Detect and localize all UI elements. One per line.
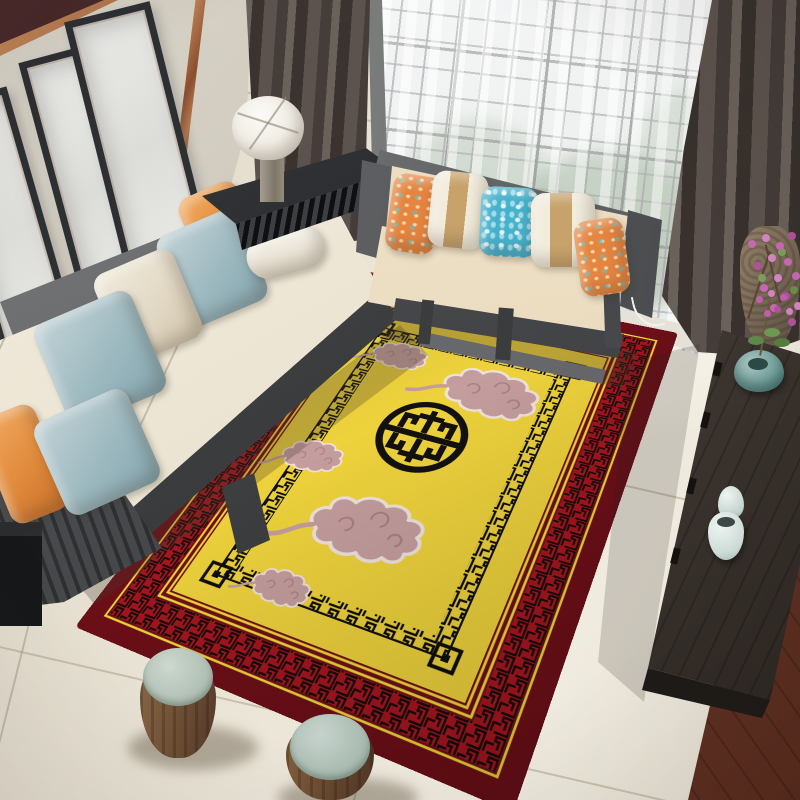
celadon-jar-opening bbox=[717, 517, 735, 527]
lampshade-seam bbox=[249, 96, 287, 150]
orchid-leaves bbox=[748, 336, 764, 345]
lotus-vase-opening bbox=[748, 358, 768, 370]
pillow-orange-floral-2 bbox=[572, 216, 632, 298]
lotus-vase bbox=[734, 350, 784, 392]
orchid-flowers bbox=[756, 296, 763, 303]
living-room-scene bbox=[0, 0, 800, 800]
table-lamp-base bbox=[260, 156, 284, 202]
table-lamp-shade bbox=[232, 96, 304, 160]
pink-blossoms bbox=[748, 240, 756, 248]
barrel-stool-1-top bbox=[143, 648, 213, 706]
side-end-table bbox=[0, 522, 42, 626]
barrel-stool-2-top bbox=[290, 714, 370, 780]
